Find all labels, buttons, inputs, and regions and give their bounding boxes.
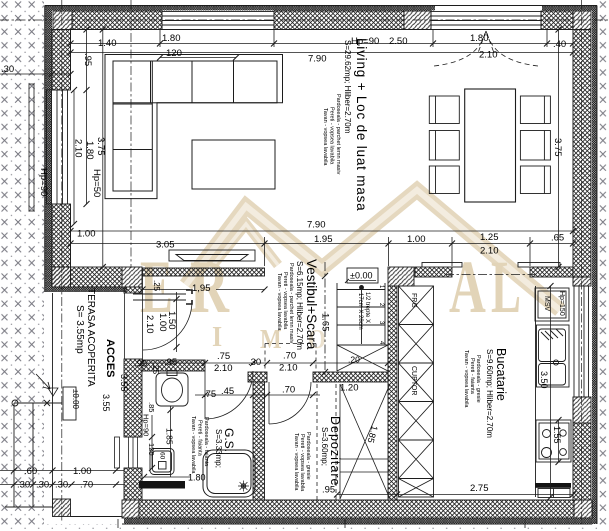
svg-text:±0.00: ±0.00 <box>350 271 372 281</box>
svg-text:1.40: 1.40 <box>98 38 117 49</box>
svg-text:1.80: 1.80 <box>162 33 181 44</box>
svg-text:CUPTOR: CUPTOR <box>410 366 417 395</box>
svg-text:3.50: 3.50 <box>539 371 549 389</box>
svg-text:3.05: 3.05 <box>156 240 175 251</box>
svg-text:.30: .30 <box>36 480 49 491</box>
svg-text:.25: .25 <box>152 280 161 292</box>
svg-text:Pereti - faianta: Pereti - faianta <box>197 420 203 457</box>
svg-text:.30: .30 <box>248 357 261 368</box>
svg-text:2.50: 2.50 <box>389 36 408 47</box>
svg-text:1,95: 1,95 <box>192 283 211 294</box>
svg-text:.70: .70 <box>283 351 296 362</box>
svg-text:S=3.60mp;: S=3.60mp; <box>320 427 329 466</box>
svg-text:60: 60 <box>159 452 166 460</box>
svg-text:3.75: 3.75 <box>552 138 563 157</box>
svg-text:1.50: 1.50 <box>166 311 177 330</box>
svg-text:I: I <box>212 320 222 353</box>
svg-text:120: 120 <box>147 443 156 456</box>
svg-text:1.65: 1.65 <box>320 313 331 332</box>
svg-text:3.55: 3.55 <box>119 374 129 392</box>
svg-text:2.10: 2.10 <box>479 50 498 61</box>
svg-text:2.75: 2.75 <box>470 483 489 494</box>
svg-text:1.80: 1.80 <box>470 33 489 44</box>
svg-text:S=6.15mp; Hliber=2.70m: S=6.15mp; Hliber=2.70m <box>295 261 304 350</box>
svg-text:1.80: 1.80 <box>84 141 95 160</box>
svg-text:Living + Loc de luat masa: Living + Loc de luat masa <box>354 38 369 211</box>
svg-text:1.80: 1.80 <box>188 473 206 483</box>
svg-text:Tavan - vopsea lavabila: Tavan - vopsea lavabila <box>293 433 299 491</box>
svg-text:.20: .20 <box>348 355 360 365</box>
svg-text:Pardoseala - faianta: Pardoseala - faianta <box>203 417 209 467</box>
svg-text:.75: .75 <box>203 389 216 400</box>
svg-text:.70: .70 <box>282 385 295 396</box>
svg-text:MSV: MSV <box>543 296 550 312</box>
svg-text:.40: .40 <box>553 39 566 50</box>
svg-text:1/2 trepte X: 1/2 trepte X <box>364 292 370 323</box>
svg-text:7.90: 7.90 <box>308 54 327 65</box>
svg-text:3.75: 3.75 <box>95 137 106 156</box>
svg-text:.30: .30 <box>1 64 14 75</box>
svg-text:S=9.60mp; Hliber=2.70m: S=9.60mp; Hliber=2.70m <box>485 349 494 438</box>
svg-text:S= 3.55mp: S= 3.55mp <box>74 305 85 354</box>
svg-text:2.10: 2.10 <box>480 246 499 257</box>
svg-text:.85: .85 <box>147 402 156 412</box>
svg-text:.65: .65 <box>551 233 564 244</box>
svg-text:3.55: 3.55 <box>101 394 111 412</box>
svg-text:Tavan - vopsea lavabila: Tavan - vopsea lavabila <box>276 273 282 331</box>
svg-text:Tavan - vopsea lavabila: Tavan - vopsea lavabila <box>322 108 328 166</box>
svg-text:±0.00: ±0.00 <box>71 389 80 410</box>
svg-text:S=3.33mp;: S=3.33mp; <box>214 429 223 468</box>
svg-text:1.00: 1.00 <box>407 234 426 245</box>
svg-text:.95: .95 <box>164 357 177 368</box>
svg-text:1.00: 1.00 <box>73 466 92 477</box>
svg-text:Tavan - vopsea lavabila: Tavan - vopsea lavabila <box>190 416 196 474</box>
svg-text:L: L <box>491 247 521 329</box>
svg-text:.75: .75 <box>217 351 230 362</box>
svg-text:2.10: 2.10 <box>279 363 298 374</box>
svg-text:1.85: 1.85 <box>165 428 175 445</box>
svg-text:ACCES: ACCES <box>104 339 116 378</box>
svg-text:2.10: 2.10 <box>73 139 84 158</box>
svg-text:1.00: 1.00 <box>77 229 96 240</box>
svg-text:Pardoseala - parchet lemn masi: Pardoseala - parchet lemn masiv <box>335 94 341 175</box>
svg-text:.95: .95 <box>82 53 93 66</box>
svg-text:1.20: 1.20 <box>340 383 359 394</box>
svg-text:G.S.: G.S. <box>222 428 236 452</box>
svg-text:.30: .30 <box>55 480 68 491</box>
svg-text:7.90: 7.90 <box>307 220 326 231</box>
svg-text:.70: .70 <box>80 480 93 491</box>
svg-text:Hp=90: Hp=90 <box>38 168 49 196</box>
svg-text:1.95: 1.95 <box>314 234 333 245</box>
svg-text:Tavan - vopsea lavabila: Tavan - vopsea lavabila <box>463 350 469 408</box>
svg-text:A: A <box>449 245 486 328</box>
svg-text:Hp=50: Hp=50 <box>91 169 102 197</box>
svg-text:FRG: FRG <box>410 293 417 308</box>
svg-text:2.10: 2.10 <box>144 315 155 334</box>
svg-text:Pereti - vopsea lavabila: Pereti - vopsea lavabila <box>329 107 335 165</box>
svg-text:Vestibul+Scara: Vestibul+Scara <box>304 259 319 350</box>
svg-text:.25: .25 <box>151 363 160 375</box>
svg-text:.45: .45 <box>221 386 234 397</box>
svg-text:Hp=150: Hp=150 <box>558 291 565 316</box>
svg-text:Bucatarie: Bucatarie <box>494 348 508 401</box>
svg-text:17cm X 28cm: 17cm X 28cm <box>357 293 363 330</box>
svg-text:TERASA ACOPERITA: TERASA ACOPERITA <box>85 288 96 387</box>
svg-text:S=29.62mp; Hliber=2.70m: S=29.62mp; Hliber=2.70m <box>343 40 352 134</box>
svg-text:.30: .30 <box>17 480 30 491</box>
svg-text:Depozitare: Depozitare <box>328 416 342 486</box>
svg-text:120: 120 <box>166 48 182 59</box>
svg-text:Hp=90: Hp=90 <box>142 414 151 436</box>
svg-text:.60: .60 <box>24 466 37 477</box>
svg-text:1.25: 1.25 <box>480 232 499 243</box>
svg-text:2.10: 2.10 <box>214 363 233 374</box>
svg-text:1.55: 1.55 <box>552 426 562 444</box>
